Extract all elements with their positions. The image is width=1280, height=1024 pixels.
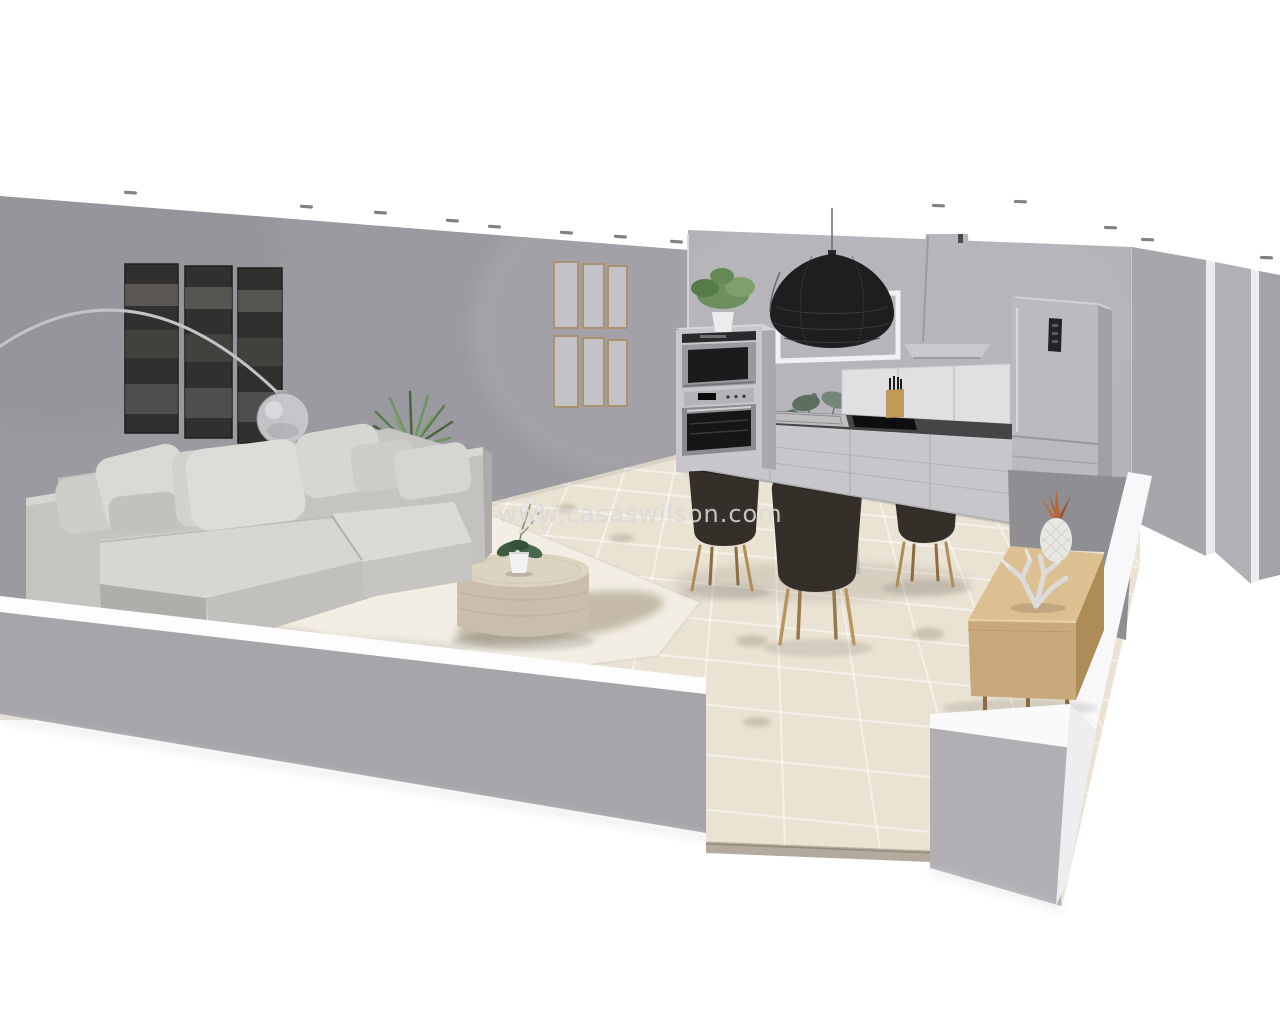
art-panel [185,266,232,438]
gallery-frame [554,262,578,328]
backsplash-panel [842,364,1010,424]
gallery-frame [583,264,604,328]
pillow [107,490,181,535]
fridge-freezer [1012,296,1112,484]
art-panel [125,264,178,433]
oven-microwave-column [676,324,776,472]
cut-wall-panel [1259,271,1280,580]
gallery-frame [583,338,604,406]
watermark: www.casaswilson.com [497,500,782,528]
render-canvas: www.casaswilson.com [0,0,1280,1024]
gallery-frame [608,340,627,406]
plant-pot [712,312,734,332]
oven-display [698,393,716,400]
floorplan-render: www.casaswilson.com [0,0,1280,1024]
orchid-pot [509,553,529,573]
gallery-frame [554,336,578,407]
gallery-frame [608,266,627,328]
cut-wall-panel [1215,262,1251,584]
pillow [183,437,307,532]
